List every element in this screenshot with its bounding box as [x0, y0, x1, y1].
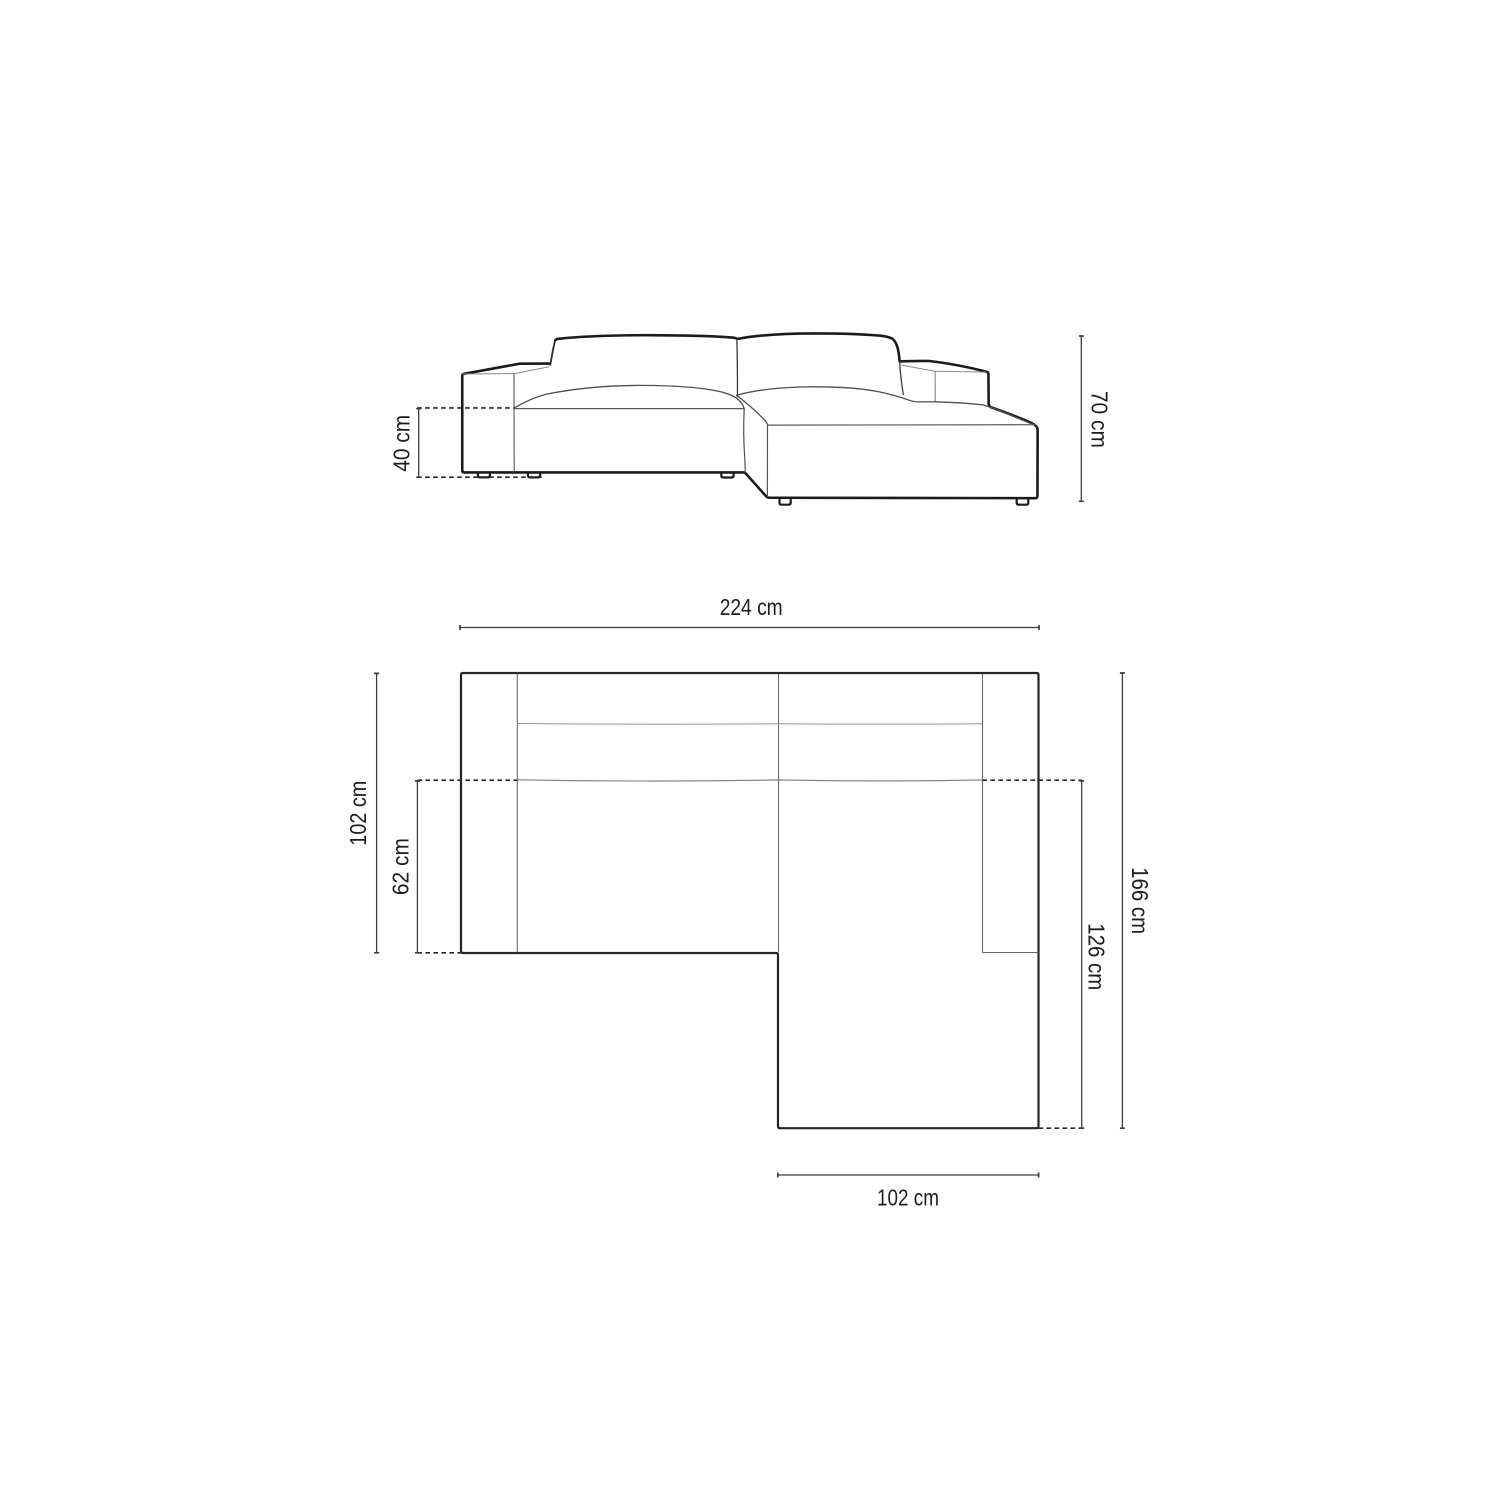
svg-text:70 cm: 70 cm [1086, 391, 1112, 448]
svg-text:62 cm: 62 cm [387, 838, 413, 895]
svg-text:102 cm: 102 cm [345, 781, 371, 846]
svg-text:166 cm: 166 cm [1127, 867, 1153, 934]
svg-text:224 cm: 224 cm [720, 594, 783, 620]
svg-text:126 cm: 126 cm [1084, 923, 1110, 990]
svg-text:40 cm: 40 cm [389, 415, 415, 472]
svg-text:102 cm: 102 cm [877, 1184, 939, 1210]
